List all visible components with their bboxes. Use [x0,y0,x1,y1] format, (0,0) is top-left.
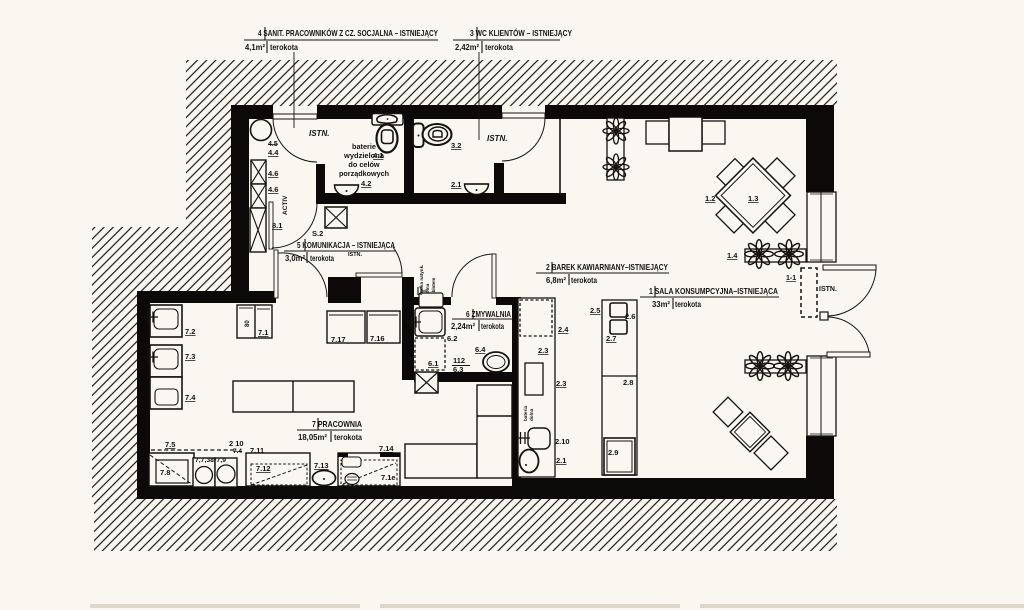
svg-text:5 KOMUNIKACJA – ISTNIEJĄCA: 5 KOMUNIKACJA – ISTNIEJĄCA [297,240,395,250]
svg-text:2.7: 2.7 [606,334,616,343]
svg-text:7.1: 7.1 [258,328,268,337]
svg-text:6.3: 6.3 [453,365,463,374]
svg-text:1 SALA KONSUMPCYJNA–ISTNIEJĄCA: 1 SALA KONSUMPCYJNA–ISTNIEJĄCA [649,286,778,296]
svg-text:6,8m²: 6,8m² [546,275,566,285]
svg-text:4.4: 4.4 [268,148,279,157]
svg-text:bateria: bateria [523,405,528,421]
svg-text:6.1: 6.1 [428,359,438,368]
svg-text:6.4: 6.4 [475,345,486,354]
svg-text:7.12: 7.12 [256,464,271,473]
svg-text:terokota: terokota [310,253,334,263]
svg-text:ISTN.: ISTN. [487,134,507,143]
svg-text:baterie: baterie [352,142,376,151]
svg-text:terokota: terokota [571,275,597,285]
svg-text:7,7,38*7,9: 7,7,38*7,9 [195,457,226,464]
svg-text:7.4: 7.4 [233,448,242,455]
svg-text:2.1: 2.1 [556,456,566,465]
svg-text:porządkowych: porządkowych [339,169,389,178]
svg-text:2,24m²: 2,24m² [451,321,475,331]
svg-text:2.1: 2.1 [451,180,461,189]
svg-text:7.13: 7.13 [314,461,329,470]
svg-text:6.2: 6.2 [447,334,457,343]
svg-text:7 PRACOWNIA: 7 PRACOWNIA [312,419,362,429]
svg-text:4.2: 4.2 [361,179,371,188]
svg-text:4.6: 4.6 [268,169,278,178]
svg-text:7.16: 7.16 [370,334,385,343]
svg-text:4.6: 4.6 [268,185,278,194]
svg-text:7.4: 7.4 [185,393,196,402]
svg-text:7.5: 7.5 [165,440,175,449]
svg-text:S.2: S.2 [312,229,323,238]
svg-text:7.17: 7.17 [331,335,346,344]
svg-text:2.3: 2.3 [538,346,548,355]
svg-text:1.4: 1.4 [727,251,738,260]
svg-text:2.5: 2.5 [590,306,600,315]
svg-text:2.8: 2.8 [623,378,633,387]
svg-text:2 BAREK KAWIARNIANY–ISTNIEJĄCY: 2 BAREK KAWIARNIANY–ISTNIEJĄCY [546,262,668,272]
svg-text:2.9: 2.9 [608,448,618,457]
svg-text:do celów: do celów [348,160,380,169]
svg-text:terokota: terokota [485,42,513,52]
svg-text:2.3: 2.3 [556,379,566,388]
svg-text:dolna: dolna [529,408,534,421]
svg-text:112: 112 [453,356,465,365]
svg-text:terokota: terokota [334,432,362,442]
svg-text:terokota: terokota [481,321,504,331]
svg-text:7.8: 7.8 [160,468,170,477]
svg-text:4.5: 4.5 [268,141,278,148]
svg-text:3,0m²: 3,0m² [285,253,305,263]
svg-text:7.14: 7.14 [379,444,394,453]
svg-text:7.2: 7.2 [185,327,195,336]
svg-text:4.1: 4.1 [373,151,383,160]
svg-text:33m²: 33m² [652,299,670,309]
svg-text:ISTN.: ISTN. [819,286,837,293]
svg-text:ISTN.: ISTN. [309,129,329,138]
svg-text:terokota: terokota [675,299,701,309]
svg-text:3 WC KLIENTÓW – ISTNIEJĄCY: 3 WC KLIENTÓW – ISTNIEJĄCY [470,27,572,38]
svg-text:ACTIV: ACTIV [282,195,289,215]
svg-text:7.3: 7.3 [185,352,195,361]
svg-text:2.4: 2.4 [558,325,569,334]
svg-text:18,05m²: 18,05m² [298,432,327,442]
svg-text:8.1: 8.1 [272,221,282,230]
svg-text:2.10: 2.10 [555,437,570,446]
svg-text:2,42m²: 2,42m² [455,42,479,52]
svg-text:1.3: 1.3 [748,194,758,203]
svg-text:3.2: 3.2 [451,141,461,150]
svg-text:1.2: 1.2 [705,194,715,203]
svg-text:2 10: 2 10 [229,439,244,448]
svg-text:80: 80 [245,320,251,327]
svg-text:ISTN.: ISTN. [348,252,363,258]
svg-text:1-1: 1-1 [786,275,796,282]
svg-text:terokota: terokota [270,42,298,52]
svg-text:4,1m²: 4,1m² [245,42,265,52]
svg-text:7.1e: 7.1e [381,473,396,482]
svg-text:4 SANIT. PRACOWNIKÓW Z CZ. SOC: 4 SANIT. PRACOWNIKÓW Z CZ. SOCJALNA – IS… [258,27,438,38]
